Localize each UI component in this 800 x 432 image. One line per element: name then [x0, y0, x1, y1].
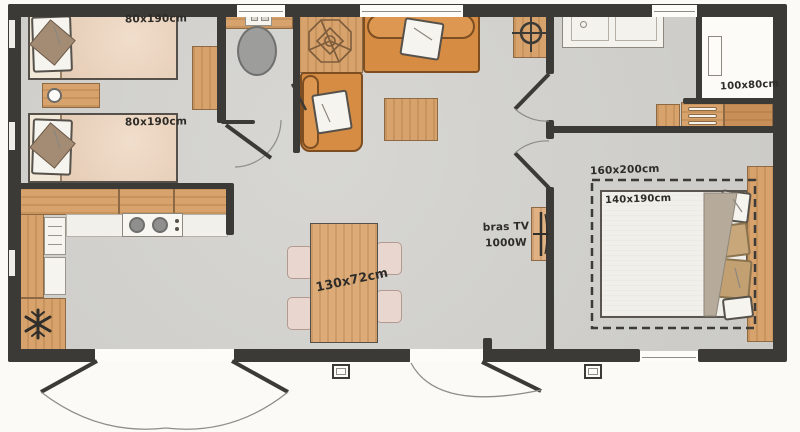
- cabinet-divider: [173, 189, 175, 214]
- wall-shower-v: [696, 6, 702, 103]
- window: [360, 5, 463, 17]
- wall-bottom: [233, 349, 411, 362]
- wall-kitchen-stub: [226, 183, 234, 235]
- cabinet-divider: [118, 189, 120, 214]
- sink-basin: [44, 257, 66, 295]
- step-inner: [336, 368, 346, 375]
- sofa-side-table: [298, 10, 363, 73]
- master-pillow: [718, 189, 752, 223]
- wall-living-right: [546, 187, 554, 355]
- door-opening: [95, 349, 234, 362]
- tv-label-line1: bras TV: [478, 220, 534, 234]
- bed-zone-dimension-label: 160x200cm: [590, 163, 660, 177]
- wall-right: [773, 4, 787, 362]
- master-cushion: [715, 258, 752, 301]
- sofa-back-section: [363, 11, 480, 73]
- drain-icon: [580, 21, 587, 28]
- wall-bottom: [8, 349, 96, 362]
- wall-nick: [9, 250, 15, 276]
- hob-knob: [175, 227, 179, 231]
- wall-bottom: [482, 349, 640, 362]
- basin: [615, 15, 657, 41]
- sofa-pillow: [311, 89, 353, 134]
- door-leaf: [232, 361, 288, 392]
- fridge: [18, 298, 66, 352]
- door-step: [332, 364, 350, 379]
- sofa-chaise-section: [300, 72, 363, 152]
- door-arc: [41, 392, 166, 429]
- master-bed-dimension-label: 140x190cm: [605, 193, 672, 206]
- master-cushion: [713, 222, 751, 259]
- floor-plan-canvas: 80x190cm 80x190cm 100x80cm 160x200cm 140…: [0, 0, 800, 432]
- wall-shower-h: [683, 98, 774, 104]
- door-step: [584, 364, 602, 379]
- kitchen-counter-row: [18, 188, 232, 215]
- burner-icon: [129, 217, 145, 233]
- wall-wc-right: [293, 6, 300, 153]
- wall-door-jamb: [483, 338, 492, 351]
- drainer-line: [48, 226, 62, 227]
- shower-channel: [708, 36, 722, 76]
- basin: [571, 15, 609, 41]
- hob: [122, 213, 183, 237]
- door-arc: [411, 363, 541, 397]
- master-pillow: [722, 295, 754, 320]
- door-leaf: [482, 362, 541, 391]
- sofa-pillow: [399, 17, 444, 61]
- drawer-front: [688, 114, 717, 118]
- tv-label-line2: 1000W: [478, 237, 534, 250]
- coffee-table: [384, 98, 438, 141]
- window: [640, 351, 698, 362]
- wall-nick: [9, 122, 15, 150]
- wall-nick: [9, 20, 15, 48]
- burner-icon: [152, 217, 168, 233]
- wall-living-right: [546, 6, 554, 74]
- tv-label: bras TV 1000W: [478, 221, 534, 249]
- door-arc: [166, 392, 288, 429]
- bed2-dimension-label: 80x190cm: [125, 115, 187, 128]
- round-lamp-icon: [47, 88, 62, 103]
- step-inner: [588, 368, 598, 375]
- dining-chair: [376, 290, 402, 323]
- door-opening: [410, 349, 483, 362]
- wall-bedroom-wc: [217, 6, 226, 123]
- door-leaf: [41, 361, 97, 392]
- wall-bedroom-kitchen: [8, 183, 232, 189]
- sink-drainer: [44, 217, 66, 255]
- wall-wc-bottom: [221, 120, 255, 124]
- window: [652, 5, 697, 17]
- drainer-line: [48, 244, 62, 245]
- hob-knob: [175, 219, 179, 223]
- bed1-dimension-label: 80x190cm: [125, 12, 187, 25]
- drawer-front: [688, 107, 717, 111]
- drawer-front: [688, 121, 717, 125]
- kitchen-left-cabinet: [18, 214, 44, 298]
- wardrobe: [192, 46, 218, 110]
- window: [237, 5, 285, 17]
- drainer-line: [48, 235, 62, 236]
- wall-bathroom-bedroom: [552, 126, 774, 133]
- toilet: [237, 26, 277, 76]
